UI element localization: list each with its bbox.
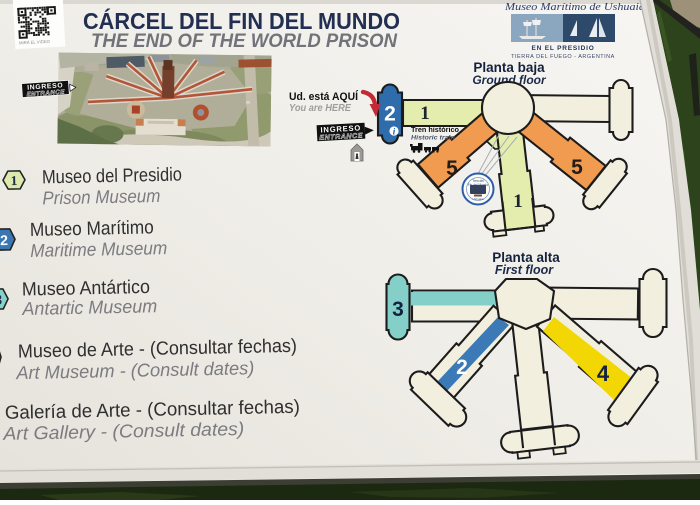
svg-text:5: 5 [446,157,458,180]
svg-text:THE END OF THE WORLD PRISON: THE END OF THE WORLD PRISON [91,30,398,52]
svg-text:4: 4 [597,361,610,386]
svg-text:1: 1 [10,173,17,188]
svg-text:Museo Marítimo de Ushuaia: Museo Marítimo de Ushuaia [504,2,645,13]
svg-text:1: 1 [513,191,523,212]
svg-text:3: 3 [392,298,404,321]
svg-text:Historic train: Historic train [411,135,455,142]
svg-text:Tren histórico: Tren histórico [411,125,460,134]
svg-text:1: 1 [420,103,430,124]
svg-text:First floor: First floor [495,263,554,277]
svg-text:2: 2 [384,103,396,126]
svg-text:2: 2 [0,232,8,248]
svg-text:You are HERE: You are HERE [289,102,352,114]
svg-text:Prison Museum: Prison Museum [42,185,160,208]
svg-text:Antartic Museum: Antartic Museum [21,295,157,319]
svg-text:EN EL PRESIDIO: EN EL PRESIDIO [531,45,594,52]
svg-text:2: 2 [456,356,468,379]
svg-text:Ushuaia: Ushuaia [472,197,483,201]
svg-text:Maritime Museum: Maritime Museum [30,237,167,261]
svg-text:5: 5 [571,156,583,179]
svg-text:Museo del Presidio: Museo del Presidio [42,164,182,188]
